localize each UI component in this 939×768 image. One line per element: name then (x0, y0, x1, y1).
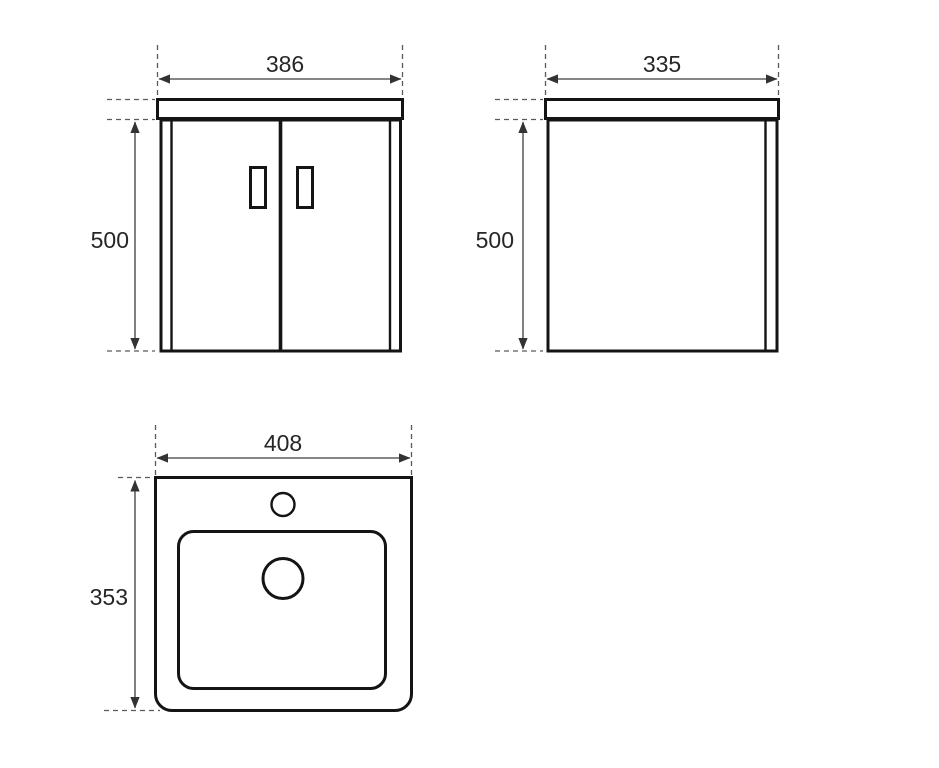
side-countertop (546, 100, 779, 119)
basin-outline (156, 478, 412, 711)
vanity-unit-dimension-drawing: 386 500 335 (0, 0, 939, 768)
front-view: 386 500 (91, 45, 403, 351)
side-height-label: 500 (476, 227, 514, 253)
side-cabinet-body (548, 120, 777, 351)
front-countertop (158, 100, 403, 119)
front-left-door-handle (251, 168, 266, 208)
front-width-label: 386 (266, 51, 304, 77)
drawing-svg: 386 500 335 (0, 0, 939, 768)
basin-width-label: 408 (264, 430, 302, 456)
front-right-door-handle (298, 168, 313, 208)
side-view: 335 500 (476, 45, 779, 351)
basin-top-view: 408 353 (90, 425, 412, 711)
side-depth-label: 335 (643, 51, 681, 77)
basin-depth-label: 353 (90, 584, 128, 610)
front-height-label: 500 (91, 227, 129, 253)
